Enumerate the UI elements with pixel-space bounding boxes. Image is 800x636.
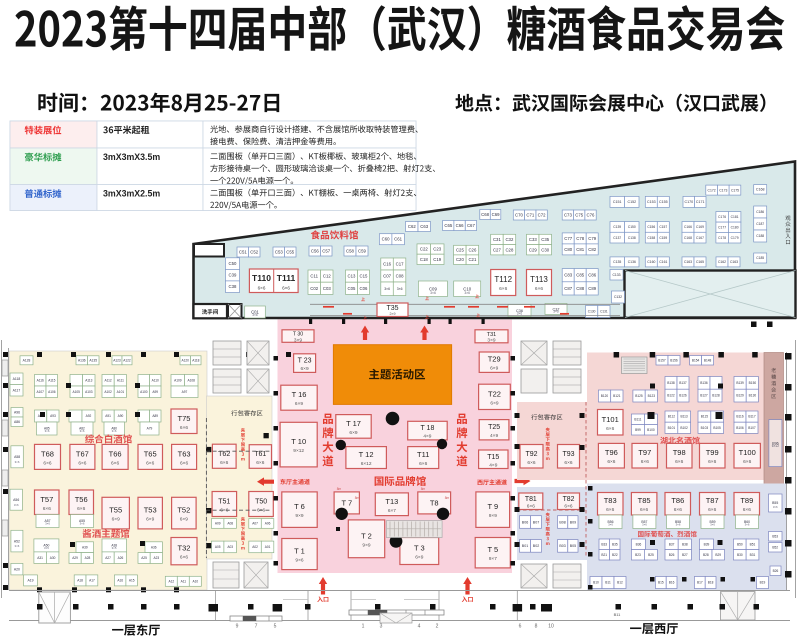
svg-text:A120: A120 [181,358,189,362]
svg-text:9×9: 9×9 [489,513,497,519]
svg-text:T 7: T 7 [341,498,352,507]
svg-text:B33: B33 [601,542,607,546]
svg-text:T31: T31 [487,332,496,338]
svg-text:6×9: 6×9 [415,555,423,561]
svg-text:6×6: 6×6 [77,506,85,512]
svg-text:6×6: 6×6 [535,286,543,292]
svg-text:T83: T83 [604,496,617,505]
svg-text:C171: C171 [696,200,705,204]
svg-text:8m: 8m [445,496,450,500]
svg-text:A29: A29 [72,556,78,560]
svg-text:3×6: 3×6 [745,523,750,527]
svg-text:3×6: 3×6 [80,429,85,433]
svg-text:A135: A135 [89,359,97,363]
svg-text:C163: C163 [730,260,738,264]
svg-text:9×9: 9×9 [362,542,370,548]
svg-text:B112: B112 [668,415,675,419]
svg-text:C133: C133 [612,273,620,277]
svg-text:T100: T100 [739,448,756,457]
svg-text:C75: C75 [575,213,583,218]
svg-text:B129: B129 [736,394,744,398]
svg-text:A10: A10 [192,579,198,583]
svg-text:6×9: 6×9 [301,366,309,372]
svg-text:4×9: 4×9 [489,462,497,468]
svg-text:T68: T68 [41,449,54,458]
svg-text:B38: B38 [682,542,688,546]
svg-text:B18: B18 [708,581,714,585]
svg-text:B148: B148 [704,358,712,362]
svg-text:10: 10 [548,624,554,630]
svg-text:T82: T82 [563,496,575,503]
svg-text:A113: A113 [85,378,92,382]
svg-text:T52: T52 [177,506,190,515]
svg-text:T62: T62 [218,451,230,458]
svg-text:C17: C17 [396,262,404,267]
svg-text:T25: T25 [488,424,500,431]
svg-text:7: 7 [255,624,258,630]
svg-text:A118: A118 [13,377,21,381]
svg-text:3×6: 3×6 [397,287,403,291]
svg-text:C80: C80 [564,247,572,252]
svg-text:6×6: 6×6 [708,459,716,465]
svg-text:T66: T66 [109,449,122,458]
svg-text:C38: C38 [229,284,237,289]
svg-text:B12: B12 [617,581,623,585]
svg-text:C71: C71 [526,213,534,218]
svg-text:B121: B121 [613,394,621,398]
svg-text:C150: C150 [628,225,636,229]
svg-text:A117: A117 [13,388,21,392]
svg-text:B16: B16 [669,581,675,585]
svg-text:8m: 8m [355,496,360,500]
svg-text:6×6: 6×6 [743,507,751,513]
svg-text:T113: T113 [530,275,548,284]
svg-text:C85: C85 [576,273,584,278]
svg-text:B130: B130 [749,394,757,398]
svg-text:B101: B101 [668,426,676,430]
svg-text:B52: B52 [772,545,778,549]
svg-text:6×6: 6×6 [220,460,228,466]
svg-text:6×6: 6×6 [675,459,683,465]
svg-text:6×6: 6×6 [606,426,614,432]
svg-text:A109: A109 [174,378,182,382]
svg-text:6×9: 6×9 [490,366,498,372]
svg-text:6×6: 6×6 [419,461,427,467]
svg-text:C139: C139 [613,225,621,229]
svg-text:C151: C151 [613,200,622,204]
svg-text:B27: B27 [682,553,688,557]
svg-text:T98: T98 [673,448,686,457]
svg-text:T 18: T 18 [420,425,434,432]
svg-text:6×6: 6×6 [499,286,507,292]
svg-text:6×6: 6×6 [564,460,572,466]
svg-text:C152: C152 [628,200,637,204]
svg-text:A58: A58 [14,455,20,459]
svg-text:C02: C02 [310,286,318,291]
svg-text:B102: B102 [680,426,688,430]
svg-text:B157: B157 [658,358,666,362]
svg-text:C19: C19 [433,257,441,262]
svg-text:3×6: 3×6 [252,313,258,317]
svg-text:6×6: 6×6 [564,504,572,510]
svg-text:C156: C156 [647,225,655,229]
svg-text:C20: C20 [456,257,464,262]
svg-text:A56: A56 [13,498,19,502]
svg-text:C166: C166 [684,225,692,229]
svg-text:C69: C69 [492,212,500,217]
svg-text:A105: A105 [72,390,80,394]
svg-text:C162: C162 [718,260,726,264]
svg-text:A116: A116 [37,378,44,382]
svg-text:A30: A30 [50,556,56,560]
svg-text:T 5: T 5 [487,545,498,554]
svg-text:B137: B137 [679,381,687,385]
svg-text:A115: A115 [48,378,55,382]
svg-text:C181: C181 [731,215,739,219]
svg-text:3×6: 3×6 [45,429,50,433]
svg-text:A112: A112 [104,378,111,382]
svg-text:B31: B31 [750,553,756,557]
svg-text:A86: A86 [14,420,20,424]
svg-text:T67: T67 [76,449,89,458]
svg-text:C28: C28 [505,247,513,252]
svg-text:6×6: 6×6 [43,460,51,466]
svg-text:A100: A100 [140,390,148,394]
svg-text:6: 6 [519,624,522,630]
svg-text:T13: T13 [385,497,398,506]
svg-text:T56: T56 [75,495,88,504]
svg-text:A108: A108 [187,378,195,382]
svg-text:A03: A03 [227,545,233,549]
svg-text:T57: T57 [40,495,53,504]
svg-text:T 30: T 30 [293,332,303,338]
svg-text:T 23: T 23 [298,358,312,365]
svg-text:B25: B25 [648,553,654,557]
svg-text:B29: B29 [715,553,721,557]
svg-text:A128: A128 [23,359,31,363]
svg-text:T110: T110 [252,273,271,283]
svg-text:T61: T61 [254,451,266,458]
svg-text:3×6: 3×6 [384,287,390,291]
svg-text:1: 1 [362,624,365,630]
svg-text:T 10: T 10 [291,437,306,446]
svg-text:6×6: 6×6 [78,460,86,466]
svg-text:6×7: 6×7 [388,508,396,514]
svg-text:C12: C12 [323,274,331,279]
svg-text:A97: A97 [182,390,188,394]
svg-text:C27: C27 [493,247,501,252]
svg-text:A89: A89 [152,414,158,418]
svg-text:2×9: 2×9 [389,312,395,316]
svg-text:T96: T96 [605,448,618,457]
svg-text:B06: B06 [522,520,528,524]
svg-text:C187: C187 [756,222,764,226]
svg-text:C86: C86 [588,273,596,278]
svg-text:T112: T112 [494,275,512,284]
svg-text:C132: C132 [614,295,622,299]
svg-text:C39: C39 [229,273,237,278]
svg-text:C179: C179 [731,236,739,240]
svg-text:C131: C131 [600,310,608,314]
svg-text:C57: C57 [322,249,330,254]
svg-text:8: 8 [535,624,538,630]
svg-text:A17: A17 [89,579,95,583]
svg-text:A16: A16 [117,579,123,583]
svg-text:6×6: 6×6 [674,507,682,513]
svg-text:T97: T97 [638,448,651,457]
svg-text:A111: A111 [117,378,124,382]
svg-text:3: 3 [380,624,383,630]
svg-text:6×6: 6×6 [111,460,119,466]
svg-text:3×9: 3×9 [294,337,302,343]
svg-text:8m: 8m [337,487,342,491]
svg-text:A90: A90 [118,414,124,418]
svg-text:C26: C26 [468,248,476,253]
svg-text:A09: A09 [215,522,221,526]
svg-text:3×6: 3×6 [676,523,681,527]
svg-text:C16: C16 [383,262,391,267]
svg-text:A08: A08 [227,522,233,526]
svg-text:A118: A118 [192,358,199,362]
svg-text:3×6: 3×6 [710,523,715,527]
svg-text:B100: B100 [647,428,655,432]
svg-text:C83: C83 [564,273,572,278]
svg-text:6×6: 6×6 [743,459,751,465]
svg-text:C173: C173 [719,188,727,192]
svg-text:A39: A39 [82,545,88,549]
svg-text:C175: C175 [731,188,739,192]
svg-text:C53: C53 [275,250,283,255]
svg-text:B07: B07 [533,520,539,524]
svg-text:B115: B115 [701,415,708,419]
svg-text:T63: T63 [178,449,191,458]
svg-text:B139: B139 [736,381,744,385]
svg-text:B123: B123 [648,394,656,398]
svg-text:A123: A123 [113,358,121,362]
svg-text:C11: C11 [310,274,318,279]
svg-text:B106: B106 [736,426,744,430]
svg-text:B107: B107 [748,426,756,430]
svg-text:A31: A31 [37,556,43,560]
svg-text:6×6: 6×6 [43,506,51,512]
svg-text:3×5: 3×5 [112,546,117,550]
svg-text:C168: C168 [756,188,765,192]
svg-text:T 17: T 17 [346,419,361,428]
svg-text:A101: A101 [117,390,125,394]
svg-text:C177: C177 [718,226,726,230]
svg-text:C159: C159 [659,236,667,240]
svg-text:T29: T29 [488,355,501,364]
svg-text:A18: A18 [77,579,83,583]
svg-text:C186: C186 [756,210,764,214]
svg-text:6×6: 6×6 [527,460,535,466]
svg-text:A25: A25 [141,556,147,560]
svg-text:6×6: 6×6 [180,425,188,431]
svg-text:8m: 8m [421,487,426,491]
svg-text:C185: C185 [756,256,764,260]
svg-text:A23: A23 [153,556,159,560]
svg-text:C68: C68 [481,212,489,217]
svg-text:C07: C07 [383,274,391,279]
svg-text:6×6: 6×6 [527,504,535,510]
svg-text:B28: B28 [703,553,709,557]
svg-text:B136: B136 [700,381,708,385]
svg-text:3×6: 3×6 [642,523,647,527]
svg-text:6×6: 6×6 [146,460,154,466]
svg-text:C60: C60 [382,237,390,242]
svg-text:B99: B99 [635,428,641,432]
svg-text:A110: A110 [152,378,159,382]
svg-text:6×6: 6×6 [708,507,716,513]
svg-text:C67: C67 [467,223,475,228]
svg-text:C138: C138 [628,236,636,240]
svg-text:T92: T92 [525,451,537,458]
svg-text:T11: T11 [417,450,429,459]
svg-text:6×6: 6×6 [258,286,266,291]
svg-text:A28: A28 [85,556,91,560]
svg-text:B26: B26 [773,569,779,573]
svg-text:C21: C21 [468,257,476,262]
svg-text:3×6: 3×6 [517,312,523,316]
svg-text:C169: C169 [696,225,704,229]
svg-text:9×9: 9×9 [295,513,303,519]
svg-text:B11: B11 [614,612,622,617]
svg-text:3mX3mX2.5m: 3mX3mX2.5m [103,189,160,199]
svg-text:C29: C29 [529,247,537,252]
svg-text:C23: C23 [433,247,441,252]
svg-text:3×6: 3×6 [14,503,19,507]
svg-text:T65: T65 [144,449,157,458]
svg-text:A27: A27 [105,556,111,560]
svg-text:C70: C70 [515,213,523,218]
svg-text:C155: C155 [659,200,668,204]
svg-text:A96: A96 [14,410,20,414]
svg-text:C08: C08 [396,274,404,279]
svg-text:B127: B127 [700,394,708,398]
svg-text:B126: B126 [679,394,687,398]
svg-text:B01: B01 [522,544,528,548]
svg-text:C176: C176 [718,215,726,219]
svg-text:B116: B116 [736,415,743,419]
svg-text:T87: T87 [706,496,719,505]
svg-text:A12: A12 [168,579,174,583]
svg-text:B17: B17 [697,581,703,585]
svg-text:6×6: 6×6 [282,286,290,291]
svg-text:T22: T22 [488,389,501,398]
svg-text:C188: C188 [756,234,764,238]
svg-text:B22: B22 [612,553,618,557]
svg-text:A05: A05 [215,545,221,549]
svg-text:A19: A19 [27,579,33,583]
svg-text:5: 5 [274,624,277,630]
svg-text:C15: C15 [360,274,368,279]
svg-text:C78: C78 [576,236,584,241]
svg-text:9: 9 [236,624,239,630]
svg-text:T8: T8 [430,498,439,507]
svg-text:C59: C59 [358,249,366,254]
svg-text:B36: B36 [636,542,642,546]
svg-text:T85: T85 [638,496,651,505]
svg-text:6×6: 6×6 [180,460,188,466]
svg-text:B11: B11 [605,581,611,585]
svg-text:3×6: 3×6 [15,544,20,548]
svg-text:3×6: 3×6 [45,522,50,526]
svg-text:B50: B50 [737,542,743,546]
svg-text:C03: C03 [323,286,331,291]
svg-text:C88: C88 [576,286,584,291]
svg-text:9×12: 9×12 [293,448,304,454]
svg-text:C163: C163 [684,260,692,264]
svg-text:T93: T93 [562,451,574,458]
svg-text:B39: B39 [704,542,710,546]
svg-text:3×6: 3×6 [608,523,613,527]
svg-text:A102: A102 [104,390,112,394]
svg-text:B53: B53 [772,534,778,538]
svg-text:A26: A26 [118,556,124,560]
svg-text:C56: C56 [311,249,319,254]
svg-text:B23: B23 [635,553,641,557]
svg-text:T 6: T 6 [294,502,305,511]
svg-text:C52: C52 [250,250,258,255]
svg-text:B02: B02 [533,544,539,548]
svg-text:C178: C178 [718,236,726,240]
svg-text:6×6: 6×6 [256,460,264,466]
svg-text:C172: C172 [708,188,716,192]
svg-text:6×9: 6×9 [112,517,120,523]
svg-text:C130: C130 [588,310,596,314]
svg-text:C160: C160 [647,260,655,264]
svg-text:B125: B125 [635,394,643,398]
svg-text:3×6: 3×6 [773,505,778,509]
svg-text:3mX3mX3.5m: 3mX3mX3.5m [103,152,160,162]
svg-text:C72: C72 [538,213,546,218]
svg-text:A93: A93 [50,414,56,418]
svg-text:6×12: 6×12 [772,444,779,448]
svg-text:4: 4 [418,624,421,630]
svg-text:T81: T81 [525,496,537,503]
svg-text:B15: B15 [658,581,664,585]
svg-text:3×6: 3×6 [15,460,20,464]
svg-text:C157: C157 [659,225,667,229]
svg-text:A122: A122 [123,358,131,362]
svg-text:6×9: 6×9 [295,401,303,407]
svg-text:6×12: 6×12 [361,461,372,467]
svg-text:6×6: 6×6 [180,555,188,561]
svg-text:C170: C170 [685,200,694,204]
svg-text:C65: C65 [444,223,452,228]
svg-text:C79: C79 [588,236,596,241]
svg-text:6×9: 6×9 [349,430,357,436]
svg-text:A107: A107 [36,390,44,394]
svg-text:6×9: 6×9 [490,400,498,406]
svg-text:C135: C135 [613,260,621,264]
svg-text:B156: B156 [670,358,678,362]
svg-text:B35: B35 [612,542,618,546]
svg-text:C35: C35 [541,237,549,242]
svg-text:C82: C82 [588,247,596,252]
svg-text:B37: B37 [669,542,675,546]
svg-text:A07: A07 [252,522,258,526]
svg-text:B105: B105 [713,426,721,430]
svg-text:B03: B03 [559,544,565,548]
svg-text:C62: C62 [408,224,416,229]
svg-text:A99: A99 [152,390,158,394]
svg-text:C77: C77 [564,236,572,241]
svg-text:T51: T51 [218,499,230,506]
svg-text:B21: B21 [601,553,607,557]
svg-text:T111: T111 [277,273,296,283]
svg-text:B113: B113 [680,415,687,419]
